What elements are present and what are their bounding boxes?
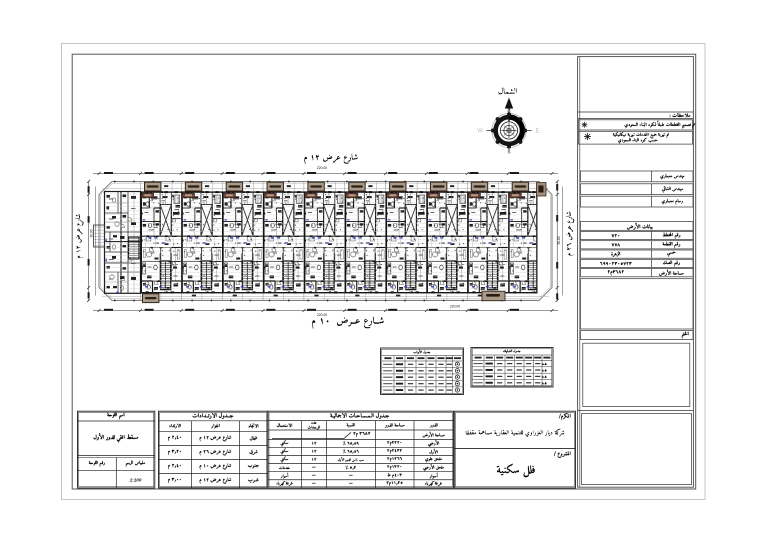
svg-text:220.00: 220.00 xyxy=(450,304,460,308)
svg-text:E: E xyxy=(535,128,539,134)
svg-text:W: W xyxy=(477,128,483,134)
svg-text:30.00: 30.00 xyxy=(557,236,561,244)
svg-text:30.00: 30.00 xyxy=(90,229,94,237)
svg-text:220.00: 220.00 xyxy=(317,166,327,170)
svg-text:220.00: 220.00 xyxy=(317,313,327,317)
svg-text:N: N xyxy=(507,109,511,115)
svg-text:1:100: 1:100 xyxy=(130,478,142,483)
